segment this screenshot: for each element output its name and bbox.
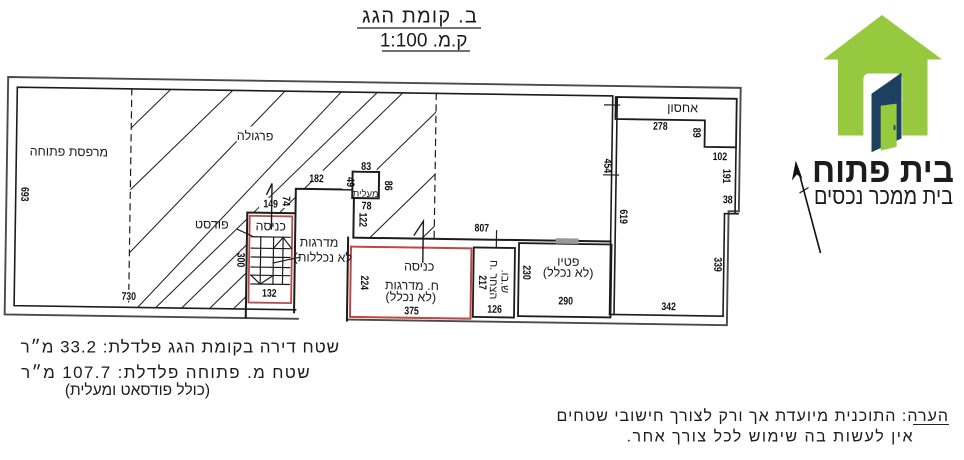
svg-text:619: 619 (617, 209, 629, 224)
svg-text:83: 83 (361, 161, 371, 173)
svg-text:78: 78 (362, 200, 372, 212)
svg-text:693: 693 (18, 187, 30, 202)
svg-text:217: 217 (476, 275, 488, 290)
svg-text:807: 807 (474, 222, 489, 234)
svg-text:38: 38 (723, 194, 733, 206)
svg-text:86: 86 (382, 181, 394, 191)
svg-text:(לא נכללות: (לא נכללות (294, 250, 353, 265)
svg-text:122: 122 (356, 212, 368, 227)
svg-text:כניסה: כניסה (404, 259, 435, 273)
svg-text:ק.מ. 1:100: ק.מ. 1:100 (380, 31, 468, 52)
svg-text:בית ממכר נכסים: בית ממכר נכסים (814, 183, 953, 209)
svg-text:פרגולה: פרגולה (237, 129, 274, 144)
svg-text:454: 454 (601, 159, 613, 174)
svg-text:278: 278 (653, 121, 668, 133)
svg-text:339: 339 (711, 257, 723, 272)
svg-text:74: 74 (280, 196, 292, 207)
svg-text:224: 224 (358, 275, 370, 290)
svg-text:(לא נכלל): (לא נכלל) (385, 290, 436, 305)
svg-text:ב. קומת הגג: ב. קומת הגג (362, 6, 478, 28)
svg-text:290: 290 (558, 295, 573, 307)
svg-text:מדרגות: מדרגות (300, 235, 339, 250)
svg-text:230: 230 (520, 265, 532, 280)
svg-text:730: 730 (121, 291, 136, 303)
svg-text:שטח מ. פתוחה פלדלת: 107.7 מ״ר: שטח מ. פתוחה פלדלת: 107.7 מ״ר (21, 363, 311, 382)
svg-text:132: 132 (262, 288, 277, 300)
svg-text:.ש.בו: .ש.בו (498, 270, 510, 294)
svg-text:300: 300 (234, 253, 246, 268)
svg-text:102: 102 (713, 151, 728, 163)
svg-text:89: 89 (690, 128, 702, 138)
svg-text:(לא נכלל): (לא נכלל) (543, 265, 594, 280)
svg-text:342: 342 (661, 301, 676, 313)
svg-text:הערה: התוכנית מיועדת אך ורק לצ: הערה: התוכנית מיועדת אך ורק לצורך חישובי… (557, 407, 949, 425)
svg-text:49: 49 (344, 177, 356, 187)
svg-text:149: 149 (263, 198, 278, 210)
svg-text:(כולל פודסאט ומעלית): (כולל פודסאט ומעלית) (65, 382, 210, 399)
svg-text:אחסון: אחסון (667, 101, 698, 115)
svg-text:182: 182 (309, 173, 324, 185)
svg-text:פודסט: פודסט (195, 217, 229, 231)
svg-text:375: 375 (404, 305, 419, 317)
svg-text:191: 191 (720, 169, 732, 184)
svg-text:אין לעשות בה שימוש לכל צורך אח: אין לעשות בה שימוש לכל צורך אחר. (627, 428, 914, 446)
svg-text:126: 126 (487, 304, 502, 316)
svg-text:שטח דירה בקומת הגג פלדלת: 33.: שטח דירה בקומת הגג פלדלת: 33.2 מ״ר (21, 338, 340, 357)
svg-text:מעלית: מעלית (353, 188, 379, 200)
svg-text:מרפסת פתוחה: מרפסת פתוחה (30, 144, 109, 159)
